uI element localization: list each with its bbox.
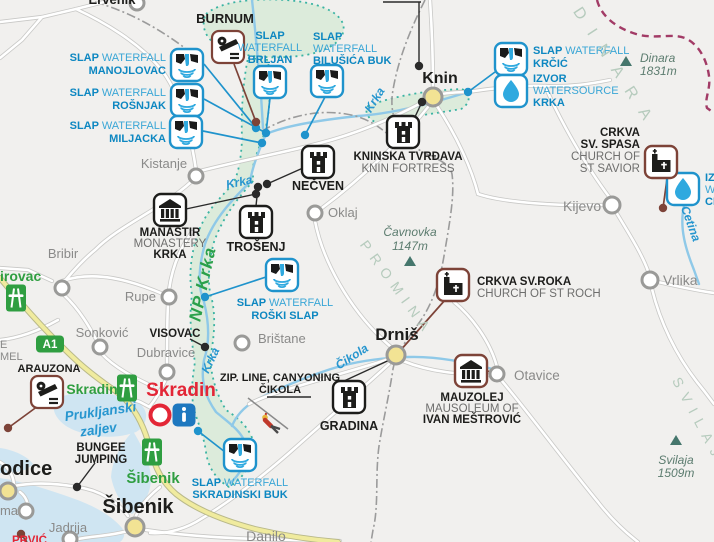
- town-marker-otavice: [490, 367, 504, 381]
- waterfall-icon: [171, 49, 203, 81]
- label-kninska-tvrdava: KNINSKA TVRĐAVAKNIN FORTRESS: [353, 151, 462, 175]
- exit-icon: [142, 439, 162, 466]
- fortress-icon: [333, 381, 365, 413]
- label-vrlika: Vrlika: [663, 272, 698, 288]
- town-marker-dubravice: [160, 365, 174, 379]
- info-icon: [173, 404, 196, 427]
- label-bungee-jumping: BUNGEEJUMPING: [75, 442, 127, 466]
- label-e-partial: E: [0, 339, 7, 351]
- town-marker-rupe: [162, 290, 176, 304]
- label-gradina: GRADINA: [320, 419, 378, 433]
- poi-dot: [262, 129, 270, 137]
- waterfall-icon: [495, 43, 527, 75]
- church-icon: [645, 146, 677, 178]
- fortress-icon: [387, 116, 419, 148]
- label-ma-partial: ma: [0, 503, 19, 518]
- town-marker-bristane: [235, 336, 249, 350]
- poi-dot: [258, 139, 266, 147]
- fortress-icon: [240, 206, 272, 238]
- label-drnis: Drniš: [375, 325, 418, 344]
- waterfall-icon: [170, 116, 202, 148]
- poi-dot: [659, 204, 667, 212]
- town-marker-knin: [424, 88, 442, 106]
- town-marker-kistanje: [189, 169, 203, 183]
- label-prvic-partial: PRVIĆ: [12, 534, 47, 542]
- label-vodice-partial: odice: [0, 458, 52, 480]
- mausoleum-icon: [455, 355, 487, 387]
- town-marker-ma: [19, 504, 33, 518]
- label-oklaj: Oklaj: [328, 205, 358, 220]
- town-marker-oklaj: [308, 206, 322, 220]
- skradin-ring-icon: [151, 406, 170, 425]
- label-necven: NEČVEN: [292, 178, 344, 193]
- label-knin: Knin: [422, 70, 458, 87]
- label-jadrija: Jadrija: [49, 520, 88, 535]
- poi-dot: [263, 180, 271, 188]
- label-bribir: Bribir: [48, 246, 79, 261]
- label-exit-irovac: irovac: [0, 268, 41, 284]
- poi-dot: [464, 88, 472, 96]
- waterfall-icon: [224, 439, 256, 471]
- waterfall-icon: [171, 84, 203, 116]
- waterfall-icon: [254, 66, 286, 98]
- label-danilo: Danilo: [246, 528, 286, 542]
- town-marker-vodice: [0, 483, 16, 499]
- krka-map: A1SLAP WATERFALLMANOJLOVACSLAP WATERFALL…: [0, 0, 714, 542]
- town-marker-kijevo: [604, 197, 620, 213]
- a1-icon: A1: [36, 336, 64, 353]
- label-visovac: VISOVAC: [150, 328, 201, 340]
- poi-dot: [418, 98, 426, 106]
- poi-dot: [252, 190, 260, 198]
- label-peak-dinara: Dinara1831m: [640, 51, 677, 78]
- fortress-icon: [302, 146, 334, 178]
- label-trosenj: TROŠENJ: [226, 239, 285, 254]
- a1-badge-label: A1: [43, 339, 58, 351]
- label-kistanje: Kistanje: [141, 156, 187, 171]
- label-mel-partial: MEL: [0, 351, 23, 363]
- town-marker-vrlika: [642, 272, 658, 288]
- waterfall-icon: [311, 65, 343, 97]
- map-canvas: A1SLAP WATERFALLMANOJLOVACSLAP WATERFALL…: [0, 0, 714, 542]
- label-burnum: BURNUM: [196, 11, 254, 26]
- label-bristane: Brištane: [258, 331, 306, 346]
- label-otavice: Otavice: [514, 368, 560, 383]
- poi-dot: [301, 131, 309, 139]
- label-kijevo: Kijevo: [563, 198, 601, 214]
- monastery-icon: [154, 194, 186, 226]
- label-peak-svilaja: Svilaja1509m: [658, 453, 695, 480]
- town-marker-drnis: [387, 346, 405, 364]
- ruins-icon: [31, 376, 63, 408]
- label-arauzona: ARAUZONA: [18, 363, 81, 375]
- poi-dot: [415, 62, 423, 70]
- label-sonkovic: Sonković: [76, 325, 129, 340]
- poi-dot: [194, 427, 202, 435]
- label-exit-skradin: Skradin: [66, 381, 117, 397]
- label-wf-skradinski: SLAP WATERFALLSKRADINSKI BUK: [192, 477, 288, 501]
- exit-icon: [6, 285, 26, 312]
- label-rupe: Rupe: [125, 289, 156, 304]
- label-ervenik-partial: Ervenik: [89, 0, 137, 7]
- poi-dot: [252, 118, 260, 126]
- poi-dot: [4, 424, 12, 432]
- poi-dot: [73, 483, 81, 491]
- drop-icon: [495, 75, 527, 107]
- label-skradin-red: Skradin: [146, 380, 216, 401]
- waterfall-icon: [266, 259, 298, 291]
- town-marker-sibenik: [126, 518, 144, 536]
- town-marker-bribir: [55, 281, 69, 295]
- town-marker-sonkovic: [93, 340, 107, 354]
- exit-icon: [117, 375, 137, 402]
- church-icon: [437, 269, 469, 301]
- label-izvor-cetina: IZVORWATERSOURCECETINA: [705, 172, 714, 208]
- label-sibenik: Šibenik: [102, 494, 174, 518]
- label-dubravice: Dubravice: [137, 345, 196, 360]
- label-exit-sibenik: Šibenik: [126, 469, 180, 487]
